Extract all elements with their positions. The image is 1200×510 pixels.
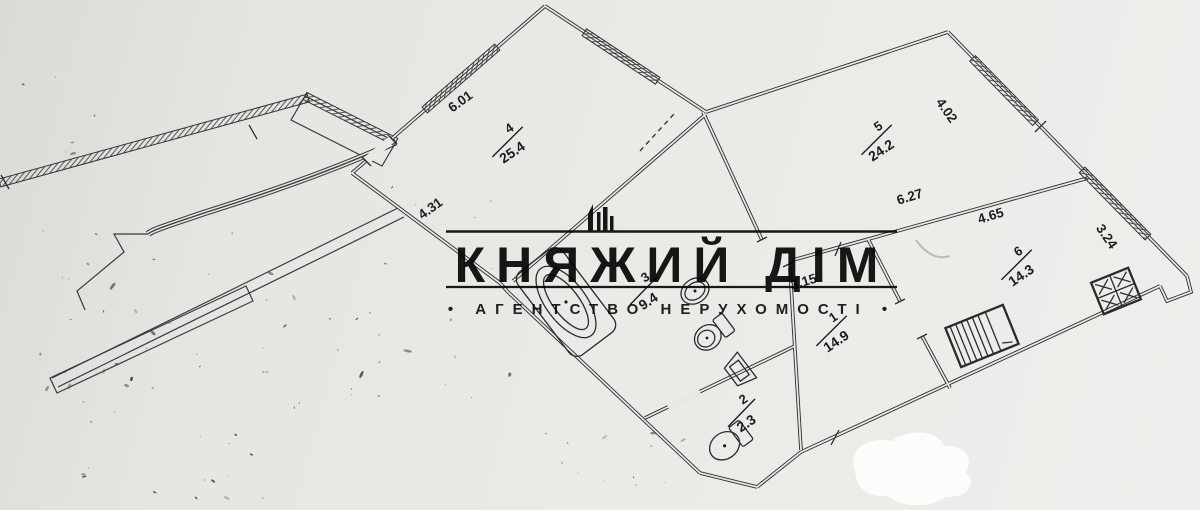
svg-text:5: 5 [871, 118, 885, 134]
floor-plan-drawing: 6.01 4.31 4.02 6.27 4.65 3.24 3.15 4 25.… [0, 0, 1200, 510]
window-room5 [970, 56, 1039, 126]
windows [422, 29, 1151, 240]
watermark-subtitle: • АГЕНТСТВО НЕРУХОМОСТІ • [448, 301, 896, 318]
dimension-4-02: 4.02 [933, 95, 960, 125]
window-room4-ne [582, 29, 660, 84]
pencil-smudge [916, 240, 950, 257]
terrace-zigzag [77, 234, 148, 310]
dimension-4-31: 4.31 [415, 194, 445, 222]
terrace-outline [50, 96, 404, 393]
balcony-railing [0, 92, 398, 186]
dimension-6-27: 6.27 [895, 186, 925, 208]
toilet-bathroom [689, 312, 735, 355]
curved-railing [148, 142, 396, 234]
svg-text:14.3: 14.3 [1005, 261, 1037, 290]
room-label-5: 5 24.2 [849, 113, 905, 167]
room-label-2: 2 2.3 [716, 387, 768, 439]
terrace-edge-line [58, 217, 404, 387]
terrace-strip [50, 286, 253, 393]
scanned-floor-plan: 6.01 4.31 4.02 6.27 4.65 3.24 3.15 4 25.… [0, 0, 1200, 510]
room-label-4: 4 25.4 [480, 115, 536, 169]
svg-text:24.2: 24.2 [865, 136, 897, 165]
svg-text:25.4: 25.4 [496, 138, 528, 167]
window-kitchen [1079, 167, 1150, 240]
svg-text:6: 6 [1011, 243, 1025, 259]
watermark: КНЯЖИЙ ДІМ • АГЕНТСТВО НЕРУХОМОСТІ • [446, 204, 897, 318]
svg-text:2.3: 2.3 [734, 411, 759, 435]
room-label-6: 6 14.3 [989, 238, 1045, 292]
whiteout-blob [853, 432, 970, 505]
watermark-logo-icon [588, 204, 614, 231]
dimension-3-24: 3.24 [1093, 221, 1121, 252]
svg-text:14.9: 14.9 [820, 327, 852, 356]
svg-text:2: 2 [736, 391, 750, 407]
watermark-title: КНЯЖИЙ ДІМ [455, 236, 890, 293]
